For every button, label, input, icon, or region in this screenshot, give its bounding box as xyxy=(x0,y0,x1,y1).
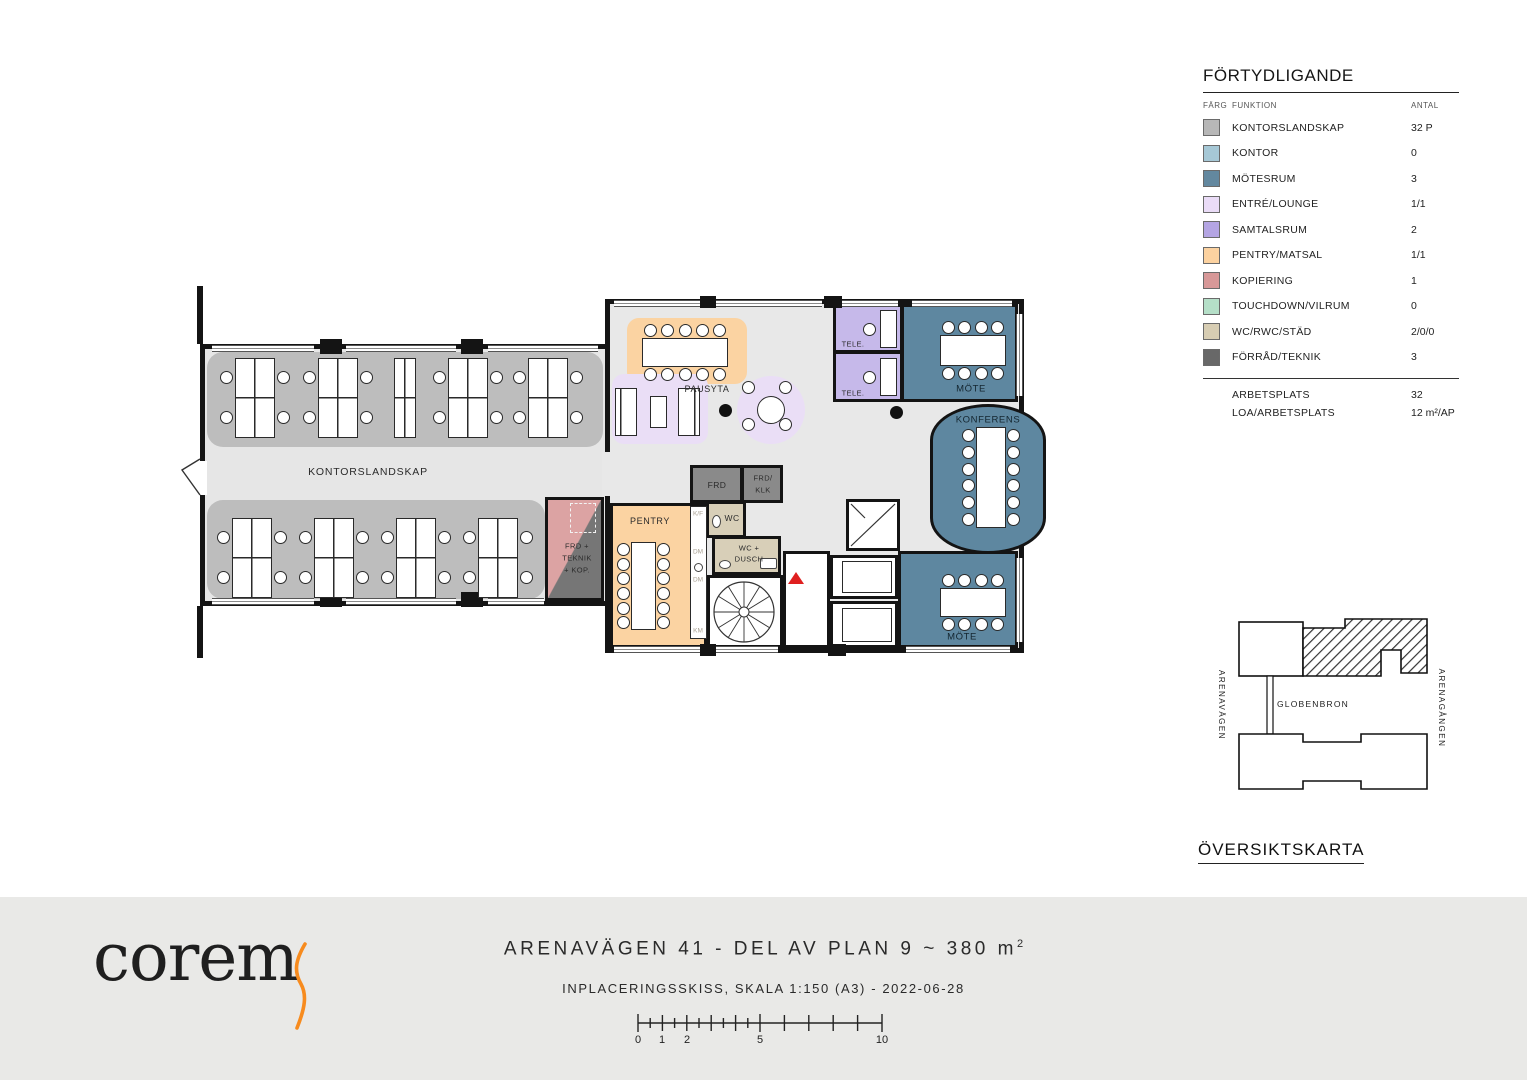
room-label: KONFERENS xyxy=(956,415,1021,426)
highlighted-premises xyxy=(1303,619,1427,676)
chair xyxy=(520,571,533,584)
toilet-icon xyxy=(719,560,731,569)
chair xyxy=(657,558,670,571)
legend-summary-row: LOA/ARBETSPLATS12 m²/AP xyxy=(1203,404,1459,422)
chair xyxy=(356,531,369,544)
window xyxy=(614,646,702,653)
chair xyxy=(520,531,533,544)
chair xyxy=(863,323,876,336)
chair xyxy=(570,371,583,384)
legend-row-antal: 3 xyxy=(1411,173,1417,185)
wall-segment xyxy=(197,286,203,344)
chair xyxy=(433,371,446,384)
chair xyxy=(1007,429,1020,442)
chair xyxy=(657,543,670,556)
meeting-table xyxy=(631,542,656,630)
legend-row-antal: 0 xyxy=(1411,300,1417,312)
room-label: KLK xyxy=(755,486,770,495)
chair xyxy=(1007,446,1020,459)
room-label: FRD + xyxy=(565,542,589,551)
chair xyxy=(217,531,230,544)
room-label: TELE. xyxy=(842,389,865,398)
scale-label: 10 xyxy=(876,1034,888,1045)
window xyxy=(716,646,778,653)
window xyxy=(488,598,544,605)
chair xyxy=(975,367,988,380)
chair xyxy=(438,571,451,584)
chair xyxy=(356,571,369,584)
legend-row: KOPIERING1 xyxy=(1203,268,1459,294)
chair xyxy=(742,381,755,394)
room-label: FRD/ xyxy=(753,474,772,483)
legend-row-antal: 1/1 xyxy=(1411,249,1426,261)
chair xyxy=(490,371,503,384)
street-label-right: ARENAGÅNGEN xyxy=(1437,669,1446,748)
legend-color-swatch xyxy=(1203,323,1220,340)
room-label: MÖTE xyxy=(947,632,977,643)
drawing-title-sup: 2 xyxy=(1017,938,1023,950)
chair xyxy=(657,602,670,615)
door-swing xyxy=(178,455,202,499)
chair xyxy=(975,618,988,631)
legend-row-antal: 2/0/0 xyxy=(1411,326,1434,338)
window xyxy=(1016,314,1023,396)
sink-icon xyxy=(694,563,703,572)
chair xyxy=(863,371,876,384)
desk-cluster xyxy=(528,358,568,438)
room-frd-klk xyxy=(741,465,783,503)
legend-color-swatch xyxy=(1203,145,1220,162)
chair xyxy=(274,571,287,584)
wall-segment xyxy=(197,606,203,658)
appliance-label: KM xyxy=(693,628,703,635)
legend-row: ENTRÉ/LOUNGE1/1 xyxy=(1203,192,1459,218)
window xyxy=(906,646,1010,653)
room-label: FRD xyxy=(708,480,727,490)
legend-color-swatch xyxy=(1203,221,1220,238)
legend-row-label: FÖRRÅD/TEKNIK xyxy=(1232,351,1321,363)
room-label: MÖTE xyxy=(956,384,986,395)
page: FRD + TEKNIK + KOP. PAUSYTA xyxy=(0,0,1527,1080)
legend-color-swatch xyxy=(1203,119,1220,136)
window xyxy=(716,300,822,307)
room-label: PAUSYTA xyxy=(685,384,730,394)
legend-row: MÖTESRUM3 xyxy=(1203,166,1459,192)
room-label: PENTRY xyxy=(630,516,670,526)
chair xyxy=(360,371,373,384)
chair xyxy=(975,574,988,587)
scale-label: 0 xyxy=(635,1034,641,1045)
kitchen-counter xyxy=(690,506,707,639)
legend-row: KONTORSLANDSKAP32 P xyxy=(1203,115,1459,141)
shaft-diagonals xyxy=(849,502,897,548)
chair xyxy=(299,571,312,584)
room-label: DUSCH xyxy=(735,555,764,564)
legend-color-swatch xyxy=(1203,170,1220,187)
entrance-marker xyxy=(788,572,804,584)
wall-pier xyxy=(700,296,716,308)
sofa xyxy=(615,388,637,436)
appliance-label: DM xyxy=(693,577,703,584)
chair xyxy=(513,371,526,384)
chair xyxy=(303,371,316,384)
room-label: WC + xyxy=(739,544,760,553)
chair xyxy=(617,587,630,600)
chair xyxy=(274,531,287,544)
chair xyxy=(438,531,451,544)
meeting-table xyxy=(642,338,728,367)
column xyxy=(719,404,732,417)
room-lobby xyxy=(783,551,830,648)
legend-row-label: SAMTALSRUM xyxy=(1232,224,1307,236)
drawing-subtitle: INPLACERINGSSKISS, SKALA 1:150 (A3) - 20… xyxy=(0,981,1527,996)
scale-bar: 0 1 2 5 10 xyxy=(630,1009,900,1045)
legend-color-swatch xyxy=(1203,298,1220,315)
chair xyxy=(277,411,290,424)
legend-row-label: KOPIERING xyxy=(1232,275,1293,287)
chair xyxy=(1007,463,1020,476)
building-block xyxy=(1239,734,1427,789)
legend-row-label: TOUCHDOWN/VILRUM xyxy=(1232,300,1350,312)
legend-row-label: WC/RWC/STÄD xyxy=(1232,326,1312,338)
window xyxy=(488,345,598,352)
chair xyxy=(942,574,955,587)
desk-cluster xyxy=(232,518,272,598)
legend-row: PENTRY/MATSAL1/1 xyxy=(1203,243,1459,269)
chair xyxy=(962,429,975,442)
legend-headers: FÄRG FUNKTION ANTAL xyxy=(1203,101,1459,115)
tele-desk xyxy=(880,310,897,348)
legend-row-antal: 3 xyxy=(1411,351,1417,363)
chair xyxy=(381,571,394,584)
legend-row-antal: 2 xyxy=(1411,224,1417,236)
wall-pier xyxy=(700,644,716,656)
chair xyxy=(696,324,709,337)
legend-row-antal: 1 xyxy=(1411,275,1417,287)
column xyxy=(890,406,903,419)
desk-cluster xyxy=(318,358,358,438)
chair xyxy=(962,446,975,459)
chair xyxy=(433,411,446,424)
chair xyxy=(220,371,233,384)
legend-row-label: MÖTESRUM xyxy=(1232,173,1296,185)
window xyxy=(212,345,314,352)
room-label: TELE. xyxy=(842,340,865,349)
legend-rows: KONTORSLANDSKAP32 PKONTOR0MÖTESRUM3ENTRÉ… xyxy=(1203,115,1459,370)
legend-summary-antal: 32 xyxy=(1411,389,1423,401)
chair xyxy=(513,411,526,424)
room-label: WC xyxy=(725,513,740,523)
chair xyxy=(962,463,975,476)
chair xyxy=(617,602,630,615)
chair xyxy=(381,531,394,544)
legend-row-label: KONTORSLANDSKAP xyxy=(1232,122,1344,134)
legend-summary: ARBETSPLATS32LOA/ARBETSPLATS12 m²/AP xyxy=(1203,378,1459,422)
overview-map: GLOBENBRON ARENAVÄGEN ARENAGÅNGEN xyxy=(1195,608,1451,818)
legend-row: KONTOR0 xyxy=(1203,141,1459,167)
chair xyxy=(679,324,692,337)
legend-summary-label: LOA/ARBETSPLATS xyxy=(1232,407,1335,419)
window xyxy=(346,598,456,605)
legend-row-label: PENTRY/MATSAL xyxy=(1232,249,1322,261)
building-block xyxy=(1239,622,1303,676)
sofa-table xyxy=(650,396,667,428)
overview-title: ÖVERSIKTSKARTA xyxy=(1198,840,1364,864)
legend-summary-antal: 12 m²/AP xyxy=(1411,407,1455,419)
bridge-connector xyxy=(1267,676,1273,734)
desk-cluster xyxy=(314,518,354,598)
chair xyxy=(696,368,709,381)
chair xyxy=(962,513,975,526)
legend-color-swatch xyxy=(1203,196,1220,213)
window xyxy=(838,300,898,307)
chair xyxy=(1007,513,1020,526)
legend-row-antal: 0 xyxy=(1411,147,1417,159)
chair xyxy=(779,381,792,394)
bridge-label: GLOBENBRON xyxy=(1277,699,1349,709)
wall-pier xyxy=(824,296,842,308)
toilet-icon xyxy=(712,515,721,528)
legend-row: FÖRRÅD/TEKNIK3 xyxy=(1203,345,1459,371)
legend-row-antal: 1/1 xyxy=(1411,198,1426,210)
chair xyxy=(713,368,726,381)
legend-row: WC/RWC/STÄD2/0/0 xyxy=(1203,319,1459,345)
appliance-label: K/F xyxy=(693,511,703,518)
chair xyxy=(742,418,755,431)
meeting-table xyxy=(940,588,1006,617)
legend-row-label: KONTOR xyxy=(1232,147,1279,159)
legend-col-farg: FÄRG xyxy=(1203,101,1227,110)
room-label: TEKNIK xyxy=(562,554,592,563)
legend-color-swatch xyxy=(1203,247,1220,264)
chair xyxy=(942,618,955,631)
wall-pier xyxy=(828,644,846,656)
chair xyxy=(463,571,476,584)
desk-cluster xyxy=(396,518,436,598)
legend-summary-row: ARBETSPLATS32 xyxy=(1203,386,1459,404)
legend-color-swatch xyxy=(1203,272,1220,289)
window xyxy=(212,598,314,605)
chair xyxy=(679,368,692,381)
sofa xyxy=(678,388,700,436)
elevator-car xyxy=(842,608,892,642)
chair xyxy=(217,571,230,584)
wall-pier xyxy=(461,339,483,354)
meeting-table xyxy=(976,427,1006,528)
legend-color-swatch xyxy=(1203,349,1220,366)
desk-cluster xyxy=(478,518,518,598)
chair xyxy=(277,371,290,384)
chair xyxy=(644,368,657,381)
chair xyxy=(713,324,726,337)
chair xyxy=(463,531,476,544)
wall-pier xyxy=(320,339,342,354)
legend-col-funktion: FUNKTION xyxy=(1232,101,1277,110)
chair xyxy=(360,411,373,424)
footer: corem ARENAVÄGEN 41 - DEL AV PLAN 9 ~ 38… xyxy=(0,897,1527,1080)
legend-row: TOUCHDOWN/VILRUM0 xyxy=(1203,294,1459,320)
chair xyxy=(779,418,792,431)
chair xyxy=(303,411,316,424)
chair xyxy=(942,367,955,380)
chair xyxy=(617,543,630,556)
window xyxy=(1016,558,1023,642)
room-label: + KOP. xyxy=(564,566,590,575)
room-label: KONTORSLANDSKAP xyxy=(308,466,428,478)
street-label-left: ARENAVÄGEN xyxy=(1217,670,1226,740)
chair xyxy=(975,321,988,334)
chair xyxy=(942,321,955,334)
scale-label: 5 xyxy=(757,1034,763,1045)
desk-cluster xyxy=(235,358,275,438)
chair xyxy=(299,531,312,544)
dashed-detail xyxy=(570,503,596,533)
scale-label: 1 xyxy=(659,1034,665,1045)
chair xyxy=(617,558,630,571)
desk-double xyxy=(394,358,416,438)
chair xyxy=(657,587,670,600)
window xyxy=(346,345,456,352)
window xyxy=(912,300,1012,307)
chair xyxy=(220,411,233,424)
window xyxy=(614,300,702,307)
meeting-table xyxy=(940,335,1006,366)
chair xyxy=(490,411,503,424)
drawing-title-text: ARENAVÄGEN 41 - DEL AV PLAN 9 ~ 380 m xyxy=(504,938,1017,959)
legend-col-antal: ANTAL xyxy=(1411,101,1439,110)
drawing-title: ARENAVÄGEN 41 - DEL AV PLAN 9 ~ 380 m2 xyxy=(0,938,1527,960)
legend: FÖRTYDLIGANDE FÄRG FUNKTION ANTAL KONTOR… xyxy=(1203,66,1459,422)
elevator-car xyxy=(842,561,892,593)
legend-summary-label: ARBETSPLATS xyxy=(1232,389,1310,401)
legend-title: FÖRTYDLIGANDE xyxy=(1203,66,1459,93)
scale-label: 2 xyxy=(684,1034,690,1045)
corridor-opening xyxy=(602,452,614,496)
legend-row-label: ENTRÉ/LOUNGE xyxy=(1232,198,1318,210)
tele-desk xyxy=(880,358,897,396)
spiral-stair xyxy=(710,578,780,645)
appliance-label: DM xyxy=(693,549,703,556)
desk-cluster xyxy=(448,358,488,438)
legend-row: SAMTALSRUM2 xyxy=(1203,217,1459,243)
legend-row-antal: 32 P xyxy=(1411,122,1433,134)
chair xyxy=(644,324,657,337)
chair xyxy=(570,411,583,424)
